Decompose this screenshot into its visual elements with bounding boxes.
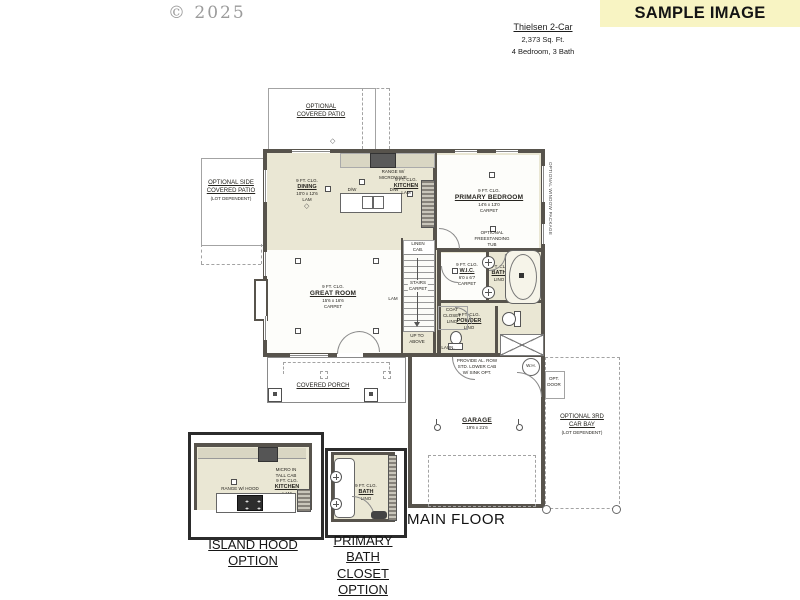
plan-bed-bath: 4 Bedroom, 3 Bath	[468, 47, 618, 56]
can-light-symbol	[489, 172, 495, 178]
wall-segment	[408, 356, 412, 508]
garage-note: PROVIDE AL. ROW STD. LOWER CAB W/ SINK O…	[457, 358, 497, 376]
water-heater-label: W.H.	[523, 363, 539, 369]
main-floor-label: MAIN FLOOR	[407, 511, 505, 528]
garage-door-dashed	[428, 455, 536, 507]
room-name: GREAT ROOM	[310, 290, 356, 298]
sink	[362, 196, 373, 209]
wall-light-icon	[482, 286, 495, 299]
stairs-label: STAIRS CARPET	[408, 280, 428, 292]
room-clg: 9 FT. CLG.	[275, 478, 299, 484]
closet-line: LINO	[443, 319, 461, 325]
ceiling-light-icon: ◇	[330, 138, 335, 145]
patio-dashed-line	[362, 88, 363, 149]
side-patio-label-line: COVERED PATIO	[207, 188, 255, 196]
linen-cabinet-label: LINEN CAB.	[411, 241, 424, 253]
wic-label: 9 FT. CLG. W.I.C. 6'0 x 6'7 CARPET	[456, 262, 478, 286]
can-light-symbol	[231, 479, 237, 485]
inset-wall	[331, 452, 395, 455]
inset-range-with-hood	[237, 495, 263, 511]
room-name: GARAGE	[462, 417, 492, 425]
room-floor: CARPET	[455, 208, 523, 214]
laundry-label: LAUN.	[441, 345, 454, 351]
patio-dashed-line	[389, 88, 390, 149]
optional-covered-patio-label: OPTIONAL COVERED PATIO	[297, 104, 345, 120]
inset-counter	[198, 448, 306, 459]
optional-window-package-note: OPTIONAL WINDOW PACKAGE	[548, 162, 553, 257]
window	[292, 150, 330, 153]
island-hood-caption: ISLAND HOOD OPTION	[188, 537, 318, 570]
freestanding-tub-note: OPTIONAL FREESTANDING TUB	[475, 230, 510, 248]
garage-label: GARAGE 19'6 x 21'6	[462, 417, 492, 431]
porch-symbol	[320, 371, 328, 379]
car-bay-line: CAR BAY	[560, 422, 604, 430]
inset-tall-cabinet	[297, 489, 311, 512]
wall-light-icon	[330, 498, 342, 510]
inset-micro-note: MICRO IN TALL CAB	[276, 467, 297, 479]
mechanical-closet	[500, 334, 544, 356]
room-clg: 9 FT. CLG.	[394, 177, 418, 183]
room-dims: 19'6 x 21'6	[462, 425, 492, 431]
window	[264, 316, 267, 340]
ceiling-light-icon: ◇	[304, 203, 309, 210]
porch-post	[268, 388, 282, 402]
side-patio-label-line: OPTIONAL SIDE	[207, 180, 255, 188]
room-floor: CARPET	[310, 304, 356, 310]
bay-post-circle	[542, 505, 551, 514]
side-patio-dashed-line	[201, 264, 261, 265]
inset-wall-oven	[258, 447, 278, 462]
garage-light-icon	[516, 424, 523, 431]
dishwasher-label: D/W	[348, 187, 357, 193]
window	[264, 170, 267, 202]
note-line: W/ SINK OPT.	[457, 370, 497, 376]
junction-symbol	[325, 186, 331, 192]
wall-segment	[495, 306, 498, 353]
note-line: MICRO IN	[276, 467, 297, 473]
floor-plan-page: © 2025 SAMPLE IMAGE Thielsen 2-Car 2,373…	[0, 0, 800, 600]
inset-wall	[194, 443, 312, 447]
porch-post-core	[273, 392, 277, 396]
window	[264, 252, 267, 276]
porch-post	[364, 388, 378, 402]
patio-label-line: OPTIONAL	[297, 104, 345, 112]
room-floor: LAM	[394, 190, 418, 196]
inset-wall	[194, 443, 197, 510]
caption-line: PRIMARY BATH	[320, 533, 406, 566]
kitchen-label: 9 FT. CLG. KITCHEN LAM	[394, 177, 418, 196]
note-line: FREESTANDING	[475, 236, 510, 242]
window	[542, 166, 545, 202]
dining-label: 9 FT. CLG. DINING 10'0 x 12'6 LAM	[296, 178, 318, 202]
porch-post-core	[369, 392, 373, 396]
can-light-symbol	[373, 328, 379, 334]
porch-dashed-line	[283, 362, 389, 363]
stairs-up-note: UP TO ABOVE	[403, 333, 431, 345]
linen-line: LINEN	[411, 241, 424, 247]
note-line: TUB	[475, 242, 510, 248]
inset-range-label: RANGE W/ HOOD	[221, 486, 259, 492]
room-clg: 9 FT. CLG.	[296, 178, 318, 184]
room-floor: CARPET	[456, 281, 478, 287]
plan-sqft: 2,373 Sq. Ft.	[468, 35, 618, 44]
window	[496, 150, 518, 153]
freestanding-tub	[505, 250, 541, 304]
patio-label-line: COVERED PATIO	[297, 112, 345, 120]
can-light-symbol	[295, 328, 301, 334]
caption-line: OPTION	[188, 553, 318, 569]
room-name: PRIMARY BEDROOM	[455, 194, 523, 202]
room-name: W.I.C.	[456, 268, 478, 275]
fireplace	[254, 279, 268, 321]
hall-floor-label: LAM	[388, 296, 397, 302]
side-patio-note: (LOT DEPENDENT)	[207, 196, 255, 202]
closet-line: CLOSET	[443, 313, 461, 319]
inset-toilet	[371, 511, 387, 519]
linen-line: CAB.	[411, 247, 424, 253]
caption-line: ISLAND HOOD	[188, 537, 318, 553]
stairs-line: CARPET	[409, 286, 427, 292]
inset-closet-wall	[388, 455, 397, 521]
room-name: KITCHEN	[275, 484, 299, 491]
inset-wall	[331, 519, 395, 522]
coat-closet-label: COAT CLOSET LINO	[443, 307, 461, 325]
side-patio-dashed-line	[261, 244, 262, 264]
stairs-line: STAIRS	[409, 280, 427, 286]
optional-3rd-car-bay-label: OPTIONAL 3RD CAR BAY (LOT DEPENDENT)	[560, 414, 604, 435]
primary-bath-caption: PRIMARY BATH CLOSET OPTION	[320, 533, 406, 598]
copyright-text: © 2025	[168, 3, 246, 23]
can-light-symbol	[295, 258, 301, 264]
porch-dashed-line	[283, 362, 284, 374]
note-line: STD. LOWER CAB	[457, 364, 497, 370]
side-patio-dashed-line	[201, 244, 202, 264]
can-light-symbol	[373, 258, 379, 264]
refrigerator-tall-cabinets	[421, 180, 435, 228]
covered-porch-label: COVERED PORCH	[296, 383, 349, 391]
room-name: DINING	[296, 184, 318, 191]
staircase	[403, 254, 435, 332]
stair-direction-arrow	[414, 322, 420, 327]
room-dims: 6'0 x 6'7	[456, 275, 478, 281]
car-bay-line: OPTIONAL 3RD	[560, 414, 604, 422]
room-name: KITCHEN	[394, 183, 418, 190]
junction-symbol	[359, 179, 365, 185]
garage-light-icon	[434, 424, 441, 431]
sample-image-banner: SAMPLE IMAGE	[600, 0, 800, 27]
room-clg: 9 FT. CLG.	[355, 483, 377, 489]
window	[542, 224, 545, 244]
plan-title-block: Thielsen 2-Car 2,373 Sq. Ft. 4 Bedroom, …	[468, 22, 618, 56]
covered-porch-outline	[267, 357, 406, 403]
room-clg: 9 FT. CLG.	[456, 262, 478, 268]
range-microwave	[370, 153, 396, 168]
caption-line: CLOSET OPTION	[320, 566, 406, 599]
note-line: PROVIDE AL. ROW	[457, 358, 497, 364]
room-name: BATH	[355, 489, 377, 496]
bay-post-circle	[612, 505, 621, 514]
sink	[373, 196, 384, 209]
car-bay-note: (LOT DEPENDENT)	[560, 430, 604, 436]
toilet-bowl	[502, 312, 516, 326]
optional-side-patio-label: OPTIONAL SIDE COVERED PATIO (LOT DEPENDE…	[207, 180, 255, 201]
patio-dashed-line	[362, 88, 389, 89]
optional-side-door-arc	[517, 372, 542, 397]
primary-bedroom-label: 9 FT. CLG. PRIMARY BEDROOM 14'6 x 13'0 C…	[455, 188, 523, 214]
room-floor: LAM	[296, 197, 318, 203]
porch-symbol	[383, 371, 391, 379]
note-line: RANGE W/	[379, 169, 407, 175]
window	[455, 150, 477, 153]
optional-side-patio-outline	[201, 158, 264, 246]
room-dims: 10'0 x 12'6	[296, 191, 318, 197]
great-room-label: 9 FT. CLG. GREAT ROOM 15'6 x 16'6 CARPET	[310, 284, 356, 310]
plan-title: Thielsen 2-Car	[468, 22, 618, 32]
tub-drain	[519, 273, 524, 278]
wall-light-icon	[330, 471, 342, 483]
